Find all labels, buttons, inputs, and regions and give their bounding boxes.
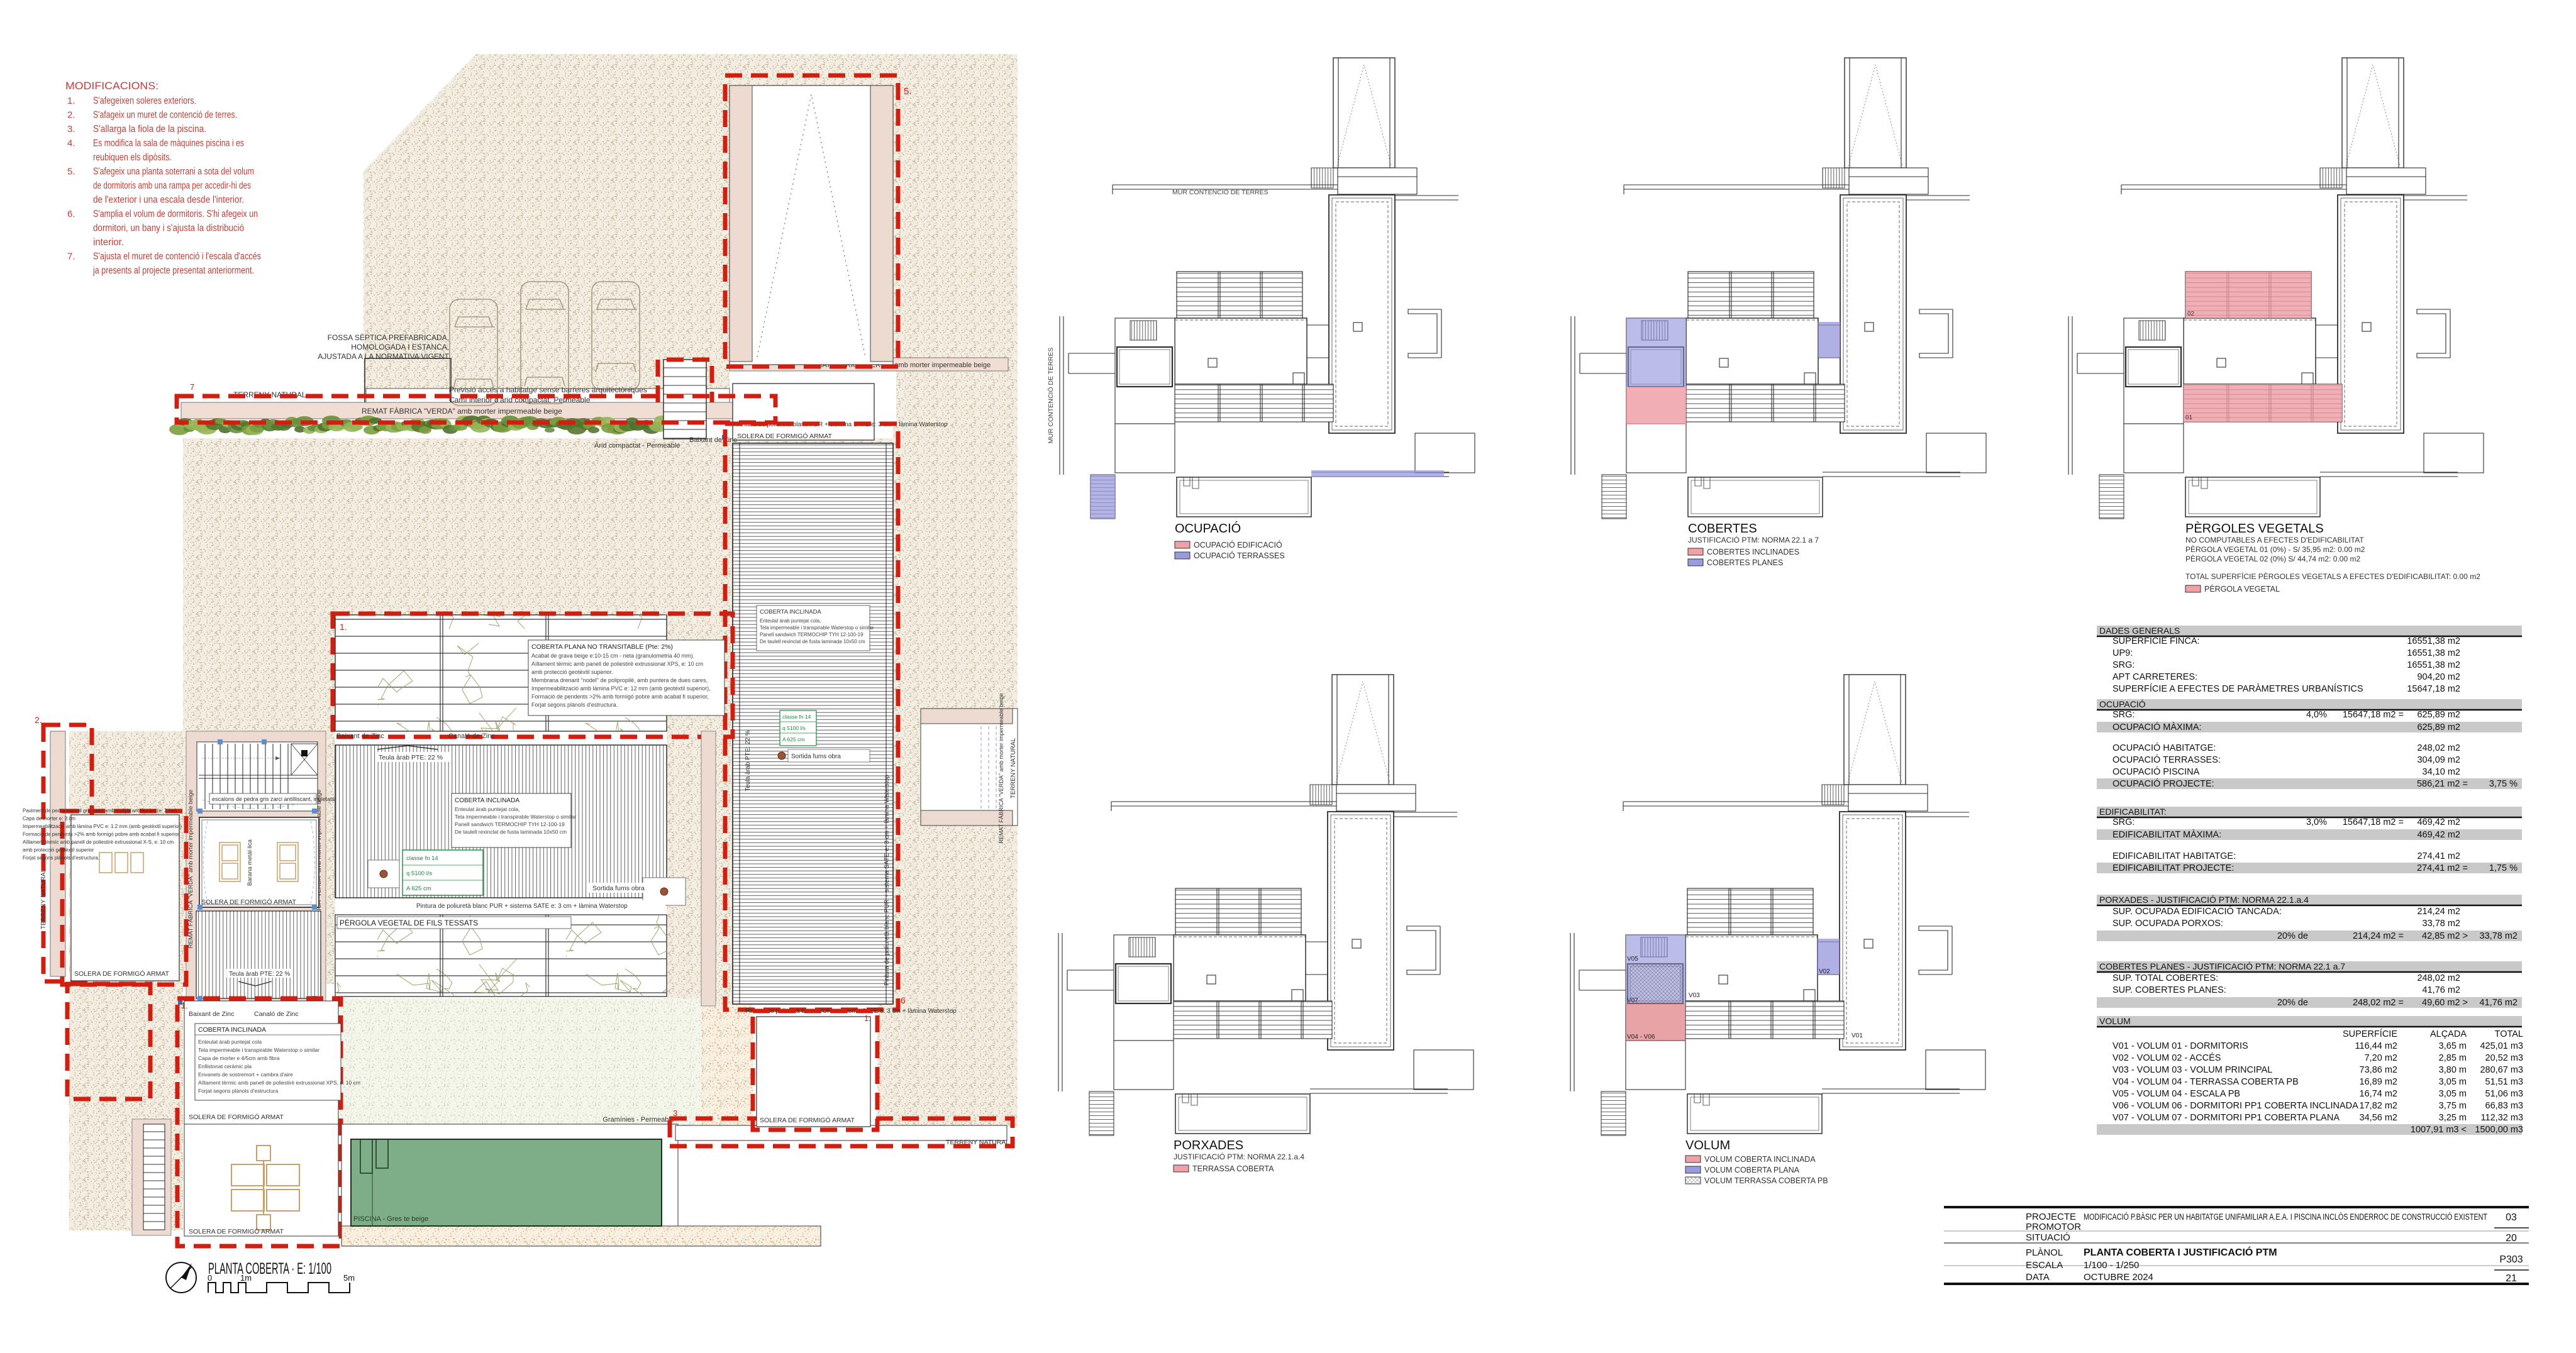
svg-text:15647,18 m2: 15647,18 m2 [2407, 684, 2460, 694]
svg-text:51,51 m3: 51,51 m3 [2485, 1077, 2523, 1087]
svg-text:7.: 7. [67, 251, 75, 262]
svg-text:AJUSTADA A LA NORMATIVA VIGENT: AJUSTADA A LA NORMATIVA VIGENT [318, 352, 449, 361]
svg-text:OCUPACIÓ: OCUPACIÓ [2099, 699, 2146, 709]
svg-text:V05 - VOLUM 04 - ESCALA PB: V05 - VOLUM 04 - ESCALA PB [2112, 1089, 2240, 1099]
svg-text:Gramínies - Permeable: Gramínies - Permeable [602, 1116, 674, 1124]
svg-text:SUP. OCUPADA EDIFICACIÓ TANCAD: SUP. OCUPADA EDIFICACIÓ TANCADA: [2112, 906, 2282, 917]
svg-text:248,02 m2: 248,02 m2 [2417, 743, 2460, 753]
svg-text:ESCALA: ESCALA [2026, 1260, 2063, 1271]
svg-text:VOLUM COBERTA PLANA: VOLUM COBERTA PLANA [1704, 1166, 1800, 1174]
svg-text:586,21 m2 =: 586,21 m2 = [2417, 779, 2468, 789]
svg-text:V07: V07 [1627, 997, 1638, 1004]
svg-text:3,05 m: 3,05 m [2439, 1077, 2467, 1087]
svg-text:16551,38 m2: 16551,38 m2 [2407, 648, 2460, 658]
svg-text:66,83 m3: 66,83 m3 [2485, 1101, 2523, 1111]
svg-text:COBERTA PLANA NO TRANSITABLE (: COBERTA PLANA NO TRANSITABLE (Pte: 2%) [531, 643, 673, 651]
svg-text:de dormitoris amb una rampa pe: de dormitoris amb una rampa per accedir-… [93, 180, 251, 191]
svg-text:SOLERA DE FORMIGÓ ARMAT: SOLERA DE FORMIGÓ ARMAT [189, 1227, 284, 1235]
svg-text:SOLERA DE FORMIGÓ ARMAT: SOLERA DE FORMIGÓ ARMAT [201, 898, 296, 906]
svg-text:PLANTA COBERTA I JUSTIFICACIÓ: PLANTA COBERTA I JUSTIFICACIÓ PTM [2084, 1246, 2277, 1258]
svg-text:dormitori, un bany i s'ajusta: dormitori, un bany i s'ajusta la distrib… [93, 223, 244, 234]
svg-text:3.: 3. [67, 124, 75, 135]
svg-text:Formació de pendents >2% amb f: Formació de pendents >2% amb formigó pob… [531, 693, 709, 700]
svg-text:5.: 5. [904, 86, 912, 97]
svg-text:16551,38 m2: 16551,38 m2 [2407, 636, 2460, 646]
svg-text:625,89 m2: 625,89 m2 [2417, 710, 2460, 720]
svg-text:Pintura de poliuretà blanc PUR: Pintura de poliuretà blanc PUR + sistema… [745, 1008, 957, 1015]
svg-text:REMAT FÀBRICA "VERDA" amb mort: REMAT FÀBRICA "VERDA" amb morter imperme… [998, 693, 1004, 843]
svg-text:51,06 m3: 51,06 m3 [2485, 1089, 2523, 1099]
svg-text:V07 - VOLUM 07 - DORMITORI PP: V07 - VOLUM 07 - DORMITORI PP1 COBERTA P… [2112, 1113, 2340, 1123]
svg-text:16551,38 m2: 16551,38 m2 [2407, 660, 2460, 670]
svg-text:SOLERA DE FORMIGÓ ARMAT: SOLERA DE FORMIGÓ ARMAT [189, 1113, 284, 1121]
svg-text:Aïllament tèrmic amb panell de: Aïllament tèrmic amb panell de poliestir… [23, 839, 174, 845]
svg-text:Pintura de poliuretà blanc PUR: Pintura de poliuretà blanc PUR + sistema… [416, 903, 628, 910]
svg-text:304,09 m2: 304,09 m2 [2417, 755, 2460, 765]
svg-text:VOLUM: VOLUM [1685, 1139, 1730, 1152]
svg-text:V04 - VOLUM 04 - TERRASSA COBE: V04 - VOLUM 04 - TERRASSA COBERTA PB [2112, 1077, 2299, 1087]
svg-text:COBERTES: COBERTES [1688, 522, 1757, 536]
svg-text:Pintura de poliuretà blanc PUR: Pintura de poliuretà blanc PUR + sistema… [884, 775, 891, 986]
svg-text:5.: 5. [67, 167, 75, 177]
svg-text:904,20 m2: 904,20 m2 [2417, 672, 2460, 682]
svg-text:TOTAL: TOTAL [2495, 1029, 2523, 1039]
svg-text:V04 - V06: V04 - V06 [1627, 1034, 1655, 1041]
svg-text:7,20 m2: 7,20 m2 [2365, 1053, 2397, 1063]
svg-text:Sortida fums obra: Sortida fums obra [791, 753, 841, 760]
svg-text:JUSTIFICACIÓ PTM: NORMA 22.1.a: JUSTIFICACIÓ PTM: NORMA 22.1.a.4 [1174, 1152, 1304, 1161]
svg-text:Teula àrab PTE: 22 %: Teula àrab PTE: 22 % [379, 754, 443, 761]
svg-text:Baixant de Zinc: Baixant de Zinc [689, 436, 737, 444]
svg-text:EDIFICABILITAT MÀXIMA:: EDIFICABILITAT MÀXIMA: [2112, 829, 2221, 840]
svg-text:OCUPACIÓ PISCINA: OCUPACIÓ PISCINA [2112, 766, 2200, 777]
svg-text:16,74 m2: 16,74 m2 [2360, 1089, 2397, 1099]
svg-text:Capa de morter e 4/5cm amb fib: Capa de morter e 4/5cm amb fibra [198, 1055, 280, 1061]
svg-text:1,75 %: 1,75 % [2489, 863, 2518, 873]
svg-text:6: 6 [901, 995, 906, 1005]
svg-text:3,25 m: 3,25 m [2439, 1113, 2467, 1123]
svg-text:TERRENY NATURAL: TERRENY NATURAL [946, 1139, 1009, 1146]
svg-text:classe fn 14: classe fn 14 [782, 714, 811, 720]
svg-text:Forjat segons plànols d'estruc: Forjat segons plànols d'estructura. [531, 702, 618, 708]
svg-text:3,75 %: 3,75 % [2489, 779, 2518, 789]
svg-text:1m: 1m [240, 1273, 252, 1283]
svg-text:S'afegeix una planta soterrani: S'afegeix una planta soterrani a sota de… [93, 167, 254, 177]
svg-text:1/100 - 1/250: 1/100 - 1/250 [2084, 1260, 2139, 1271]
svg-text:MODIFICACIÓ P.BÀSIC PER UN HAB: MODIFICACIÓ P.BÀSIC PER UN HABITATGE UNI… [2084, 1212, 2487, 1222]
svg-text:A 625 cm: A 625 cm [406, 885, 431, 892]
svg-text:Impermeabilització amb làmina: Impermeabilització amb làmina PVC e: 12 … [531, 685, 711, 692]
svg-text:Teula àrab PTE: 22 %: Teula àrab PTE: 22 % [745, 730, 752, 791]
svg-text:VOLUM: VOLUM [2099, 1016, 2131, 1026]
svg-text:3,0%: 3,0% [2306, 817, 2327, 827]
svg-text:274,41 m2 =: 274,41 m2 = [2417, 863, 2468, 873]
svg-text:03: 03 [2506, 1212, 2517, 1223]
svg-text:SOLERA DE FORMIGÓ ARMAT: SOLERA DE FORMIGÓ ARMAT [760, 1116, 855, 1124]
svg-text:112,32 m3: 112,32 m3 [2481, 1113, 2523, 1123]
svg-text:1.: 1. [864, 1013, 871, 1023]
svg-text:VOLUM TERRASSA COBERTA PB: VOLUM TERRASSA COBERTA PB [1704, 1176, 1828, 1185]
svg-text:1.: 1. [67, 96, 75, 106]
svg-text:A 625 cm: A 625 cm [782, 736, 804, 743]
svg-text:Sortida fums obra: Sortida fums obra [592, 885, 645, 892]
svg-text:S'afageix un muret de contenci: S'afageix un muret de contenció de terre… [93, 110, 237, 121]
svg-text:20,52 m3: 20,52 m3 [2485, 1053, 2523, 1063]
svg-text:PÈRGOLA VEGETAL 02 (0%) S/ 4: PÈRGOLA VEGETAL 02 (0%) S/ 44,74 m2: 0.0… [2185, 554, 2360, 563]
svg-text:COBERTES INCLINADES: COBERTES INCLINADES [1707, 548, 1799, 556]
svg-text:OCUPACIÓ MÀXIMA:: OCUPACIÓ MÀXIMA: [2112, 722, 2202, 732]
svg-text:Aïllament tèrmic amb panell de: Aïllament tèrmic amb panell de poliestir… [198, 1080, 360, 1086]
svg-text:Tela impermeable i transpirabl: Tela impermeable i transpirable Watersto… [760, 625, 874, 631]
svg-text:OCTUBRE 2024: OCTUBRE 2024 [2084, 1272, 2153, 1283]
svg-text:PISCINA - Gres te beige: PISCINA - Gres te beige [353, 1215, 428, 1223]
svg-text:469,42 m2: 469,42 m2 [2417, 817, 2460, 827]
svg-text:Paviment de pedra natural gris: Paviment de pedra natural gris zarci amb… [23, 808, 177, 814]
svg-text:SUP. COBERTES PLANES:: SUP. COBERTES PLANES: [2112, 985, 2226, 995]
svg-text:214,24 m2: 214,24 m2 [2417, 907, 2460, 917]
svg-text:EDIFICABILITAT PROJECTE:: EDIFICABILITAT PROJECTE: [2112, 863, 2234, 873]
svg-text:Canaló de Zinc: Canaló de Zinc [254, 1010, 299, 1018]
svg-text:OCUPACIÓ: OCUPACIÓ [1175, 521, 1241, 536]
svg-text:15647,18 m2 =: 15647,18 m2 = [2343, 710, 2404, 720]
svg-text:Capa de morter e: 3 cm: Capa de morter e: 3 cm [23, 816, 75, 822]
svg-text:SRG:: SRG: [2112, 710, 2135, 720]
svg-text:de l'exterior i una escala des: de l'exterior i una escala desde l'inter… [93, 195, 244, 206]
svg-text:Acabat de grava beige e:10-15: Acabat de grava beige e:10-15 cm - neta … [531, 653, 694, 659]
svg-text:Enteulat àrab puntejat cola,: Enteulat àrab puntejat cola, [760, 618, 821, 624]
svg-text:PORXADES: PORXADES [1174, 1139, 1243, 1152]
svg-text:Baixant de Zinc: Baixant de Zinc [189, 1010, 234, 1018]
svg-text:3,80 m: 3,80 m [2439, 1065, 2467, 1075]
svg-text:EDIFICABILITAT:: EDIFICABILITAT: [2099, 807, 2167, 817]
svg-text:Enteulat àrab puntejat cola: Enteulat àrab puntejat cola [198, 1039, 262, 1045]
svg-text:Aïllament tèrmic amb panell de: Aïllament tèrmic amb panell de poliestir… [531, 661, 703, 667]
svg-text:Panell sandwich TERMOCHIP TYH: Panell sandwich TERMOCHIP TYH 12-100-19 [455, 821, 565, 827]
svg-text:COBERTA INCLINADA: COBERTA INCLINADA [198, 1026, 266, 1034]
svg-text:Enteulat àrab puntejat cola,: Enteulat àrab puntejat cola, [455, 806, 520, 812]
svg-text:Enllistonat ceràmic pla: Enllistonat ceràmic pla [198, 1063, 252, 1069]
svg-text:Baixant de Zinc: Baixant de Zinc [336, 732, 384, 740]
svg-text:SOLERA DE FORMIGÓ ARMAT: SOLERA DE FORMIGÓ ARMAT [737, 432, 832, 440]
svg-text:16,89 m2: 16,89 m2 [2360, 1077, 2397, 1087]
svg-text:interior.: interior. [93, 237, 124, 248]
svg-text:73,86 m2: 73,86 m2 [2360, 1065, 2397, 1075]
svg-text:De taulell rexinclat de fusta: De taulell rexinclat de fusta laminada 1… [760, 639, 865, 644]
svg-text:SRG:: SRG: [2112, 817, 2135, 827]
svg-text:2,85 m: 2,85 m [2439, 1053, 2467, 1063]
svg-text:TERRENY NATURAL: TERRENY NATURAL [1010, 737, 1017, 798]
svg-text:Forjat segons plànols d'estruc: Forjat segons plànols d'estructura. [23, 855, 99, 861]
svg-text:21: 21 [2506, 1273, 2517, 1284]
svg-text:SUP. OCUPADA PORXOS:: SUP. OCUPADA PORXOS: [2112, 919, 2223, 929]
svg-text:NO COMPUTABLES A EFECTES D'EDI: NO COMPUTABLES A EFECTES D'EDIFICABILITA… [2185, 536, 2364, 544]
svg-text:escalons de pedra gris zarci a: escalons de pedra gris zarci antilliscan… [212, 796, 335, 802]
svg-text:OCUPACIÓ PROJECTE:: OCUPACIÓ PROJECTE: [2112, 778, 2214, 789]
svg-text:1007,91 m3 <: 1007,91 m3 < [2411, 1125, 2467, 1135]
svg-text:SUPERFICIE FINCA:: SUPERFICIE FINCA: [2112, 636, 2200, 646]
svg-text:PÈRGOLA VEGETAL DE FILS TESSAT: PÈRGOLA VEGETAL DE FILS TESSATS [340, 918, 478, 927]
svg-text:DADES GENERALS: DADES GENERALS [2099, 626, 2180, 636]
svg-text:COBERTES PLANES - JUSTIFICACIÓ: COBERTES PLANES - JUSTIFICACIÓ PTM: NORM… [2099, 961, 2345, 971]
svg-text:41,76 m2: 41,76 m2 [2423, 985, 2460, 995]
svg-text:TERRASSA COBERTA: TERRASSA COBERTA [1192, 1164, 1274, 1173]
svg-text:UP9:: UP9: [2112, 648, 2133, 658]
svg-text:33,78 m2: 33,78 m2 [2423, 919, 2460, 929]
svg-text:APT CARRETERES:: APT CARRETERES: [2112, 672, 2197, 682]
svg-text:01: 01 [2185, 414, 2193, 421]
svg-text:5m: 5m [343, 1273, 355, 1283]
svg-text:S'amplia el volum de dormitori: S'amplia el volum de dormitoris. S'hi af… [93, 209, 258, 219]
svg-text:SOLERA DE FORMIGÓ ARMAT: SOLERA DE FORMIGÓ ARMAT [74, 969, 169, 978]
svg-text:JUSTIFICACIÓ PTM: NORMA 22.1 a: JUSTIFICACIÓ PTM: NORMA 22.1 a 7 [1688, 535, 1819, 544]
svg-text:34,10 m2: 34,10 m2 [2423, 767, 2460, 777]
svg-text:3,65 m: 3,65 m [2439, 1041, 2467, 1051]
svg-text:PÈRGOLA VEGETAL 01 (0%) - S/ 3: PÈRGOLA VEGETAL 01 (0%) - S/ 35,95 m2: 0… [2185, 544, 2365, 554]
svg-text:PORXADES - JUSTIFICACIÓ PTM: N: PORXADES - JUSTIFICACIÓ PTM: NORMA 22.1.… [2099, 895, 2309, 905]
svg-text:3: 3 [673, 1108, 677, 1118]
svg-text:Tela impermeable i transpirabl: Tela impermeable i transpirable Watersto… [198, 1047, 319, 1053]
svg-text:SRG:: SRG: [2112, 660, 2135, 670]
svg-text:COBERTA INCLINADA: COBERTA INCLINADA [760, 609, 822, 616]
svg-text:2.: 2. [67, 110, 75, 121]
svg-text:33,78 m2: 33,78 m2 [2480, 931, 2518, 941]
svg-text:425,01 m3: 425,01 m3 [2480, 1041, 2523, 1051]
svg-text:classe fn 14: classe fn 14 [406, 855, 438, 862]
svg-text:PLANTA COBERTA · E: 1/100: PLANTA COBERTA · E: 1/100 [208, 1260, 331, 1278]
svg-text:S'ajusta el muret de contenció: S'ajusta el muret de contenció i l'escal… [93, 251, 261, 262]
svg-text:V01 - VOLUM 01 - DORMITORIS: V01 - VOLUM 01 - DORMITORIS [2112, 1041, 2248, 1051]
svg-text:Impermeabilització amb làmina: Impermeabilització amb làmina PVC e: 1.2… [23, 824, 182, 829]
svg-text:Previsió accés a habitatge sen: Previsió accés a habitatge sense barrere… [449, 385, 647, 394]
svg-text:SITUACIÓ: SITUACIÓ [2026, 1232, 2070, 1243]
svg-text:1.: 1. [340, 622, 347, 632]
svg-text:P303: P303 [2499, 1254, 2523, 1265]
svg-text:V01: V01 [1851, 1032, 1863, 1039]
svg-text:274,41 m2: 274,41 m2 [2417, 851, 2460, 861]
svg-text:TERRENY NATURAL: TERRENY NATURAL [40, 868, 47, 929]
svg-text:OCUPACIÓ TERRASSES:: OCUPACIÓ TERRASSES: [2112, 754, 2221, 765]
svg-text:Teula àrab PTE: 22 %: Teula àrab PTE: 22 % [229, 971, 290, 978]
svg-text:3,75 m: 3,75 m [2439, 1101, 2467, 1111]
svg-text:V03: V03 [1689, 992, 1700, 999]
svg-text:OCUPACIÓ TERRASSES: OCUPACIÓ TERRASSES [1194, 551, 1285, 560]
svg-text:V02: V02 [1819, 968, 1830, 975]
svg-text:S'allarga la fiola de la pisci: S'allarga la fiola de la piscina. [93, 124, 206, 135]
svg-text:15647,18 m2 =: 15647,18 m2 = [2343, 817, 2404, 827]
svg-text:V02 - VOLUM 02 - ACCÉS: V02 - VOLUM 02 - ACCÉS [2112, 1052, 2221, 1063]
svg-text:REMAT FÀBRICA "VERDA" amb mort: REMAT FÀBRICA "VERDA" amb morter imperme… [362, 406, 562, 416]
svg-text:EDIFICABILITAT HABITATGE:: EDIFICABILITAT HABITATGE: [2112, 851, 2236, 861]
svg-text:49,60 m2 >: 49,60 m2 > [2422, 998, 2468, 1008]
svg-text:S'afegeixen soleres exteriors.: S'afegeixen soleres exteriors. [93, 96, 196, 106]
svg-text:SUP. TOTAL COBERTES:: SUP. TOTAL COBERTES: [2112, 973, 2218, 983]
svg-text:42,85 m2 >: 42,85 m2 > [2422, 931, 2468, 941]
svg-text:MODIFICACIONS:: MODIFICACIONS: [65, 80, 158, 92]
svg-text:SUPERFÍCIE: SUPERFÍCIE [2343, 1029, 2397, 1039]
svg-text:1.: 1. [181, 1001, 188, 1010]
svg-text:3,05 m: 3,05 m [2439, 1089, 2467, 1099]
svg-text:OCUPACIÓ HABITATGE:: OCUPACIÓ HABITATGE: [2112, 743, 2216, 753]
svg-text:469,42 m2: 469,42 m2 [2417, 830, 2460, 840]
svg-text:7: 7 [190, 382, 194, 392]
svg-text:TOTAL SUPERFÍCIE PÈRGOLES VEGE: TOTAL SUPERFÍCIE PÈRGOLES VEGETALS A EFE… [2185, 572, 2480, 581]
svg-text:PROJECTE: PROJECTE [2026, 1212, 2076, 1222]
svg-text:HOMOLOGADA I ESTANCA,: HOMOLOGADA I ESTANCA, [351, 343, 449, 351]
svg-text:Àrid compactat - Permeable: Àrid compactat - Permeable [594, 441, 680, 450]
svg-text:amb protecció geotèxtil superi: amb protecció geotèxtil superior [23, 848, 94, 853]
svg-text:2.: 2. [35, 715, 42, 725]
svg-text:4.: 4. [67, 138, 75, 149]
svg-text:MUR CONTENCIÓ DE TERRES: MUR CONTENCIÓ DE TERRES [1046, 348, 1055, 444]
svg-text:625,89 m2: 625,89 m2 [2417, 722, 2460, 732]
svg-text:Barana metàl·lica: Barana metàl·lica [247, 839, 253, 886]
svg-text:02: 02 [2187, 311, 2195, 318]
svg-text:41,76 m2: 41,76 m2 [2480, 998, 2518, 1008]
svg-text:248,02 m2 =: 248,02 m2 = [2353, 998, 2404, 1008]
svg-text:248,02 m2: 248,02 m2 [2417, 973, 2460, 983]
svg-text:Forjat segons plànols d'estruc: Forjat segons plànols d'estructura [198, 1088, 279, 1094]
svg-text:reubiquen els dipòsits.: reubiquen els dipòsits. [93, 152, 172, 163]
svg-text:0: 0 [208, 1273, 212, 1283]
svg-text:20% de: 20% de [2277, 998, 2308, 1008]
svg-text:COBERTA INCLINADA: COBERTA INCLINADA [455, 797, 519, 804]
svg-text:Tela impermeable i transpirabl: Tela impermeable i transpirable Watersto… [455, 814, 576, 820]
svg-text:SUPERFÍCIE A EFECTES DE PARÀME: SUPERFÍCIE A EFECTES DE PARÀMETRES URBAN… [2112, 683, 2363, 694]
svg-text:REMAT FÀBRICA "VERDA" amb mort: REMAT FÀBRICA "VERDA" amb morter imperme… [187, 790, 194, 948]
svg-text:amb protecció geotèxtil superi: amb protecció geotèxtil superior. [531, 669, 613, 675]
svg-text:34,56 m2: 34,56 m2 [2360, 1113, 2397, 1123]
svg-text:4,0%: 4,0% [2306, 710, 2327, 720]
svg-text:Membrana drenant "nodel" de po: Membrana drenant "nodel" de polipropilè,… [531, 677, 708, 683]
svg-text:q 5100 l/s: q 5100 l/s [406, 870, 432, 877]
svg-text:17,82 m2: 17,82 m2 [2360, 1101, 2397, 1111]
svg-text:20: 20 [2506, 1233, 2517, 1244]
svg-text:280,67 m3: 280,67 m3 [2480, 1065, 2523, 1075]
svg-text:FOSSA SÈPTICA PREFABRICADA,: FOSSA SÈPTICA PREFABRICADA, [328, 333, 449, 342]
svg-text:Es modifica la sala de màquine: Es modifica la sala de màquines piscina … [93, 138, 244, 149]
svg-text:PÈRGOLA VEGETAL: PÈRGOLA VEGETAL [2204, 584, 2280, 594]
svg-text:Canaló de Zinc: Canaló de Zinc [448, 732, 495, 740]
svg-text:q 5100 l/s: q 5100 l/s [782, 725, 806, 731]
svg-text:PROMOTOR: PROMOTOR [2026, 1222, 2081, 1232]
svg-text:20% de: 20% de [2277, 931, 2308, 941]
svg-text:6.: 6. [67, 209, 75, 219]
svg-text:ja presents al projecte presen: ja presents al projecte presentat anteri… [92, 265, 254, 276]
svg-text:De taulell rexinclat de fusta: De taulell rexinclat de fusta laminada 1… [455, 829, 567, 835]
svg-text:1500,00 m3: 1500,00 m3 [2475, 1125, 2523, 1135]
svg-text:V03 - VOLUM 03 - VOLUM PRINCIP: V03 - VOLUM 03 - VOLUM PRINCIPAL [2112, 1065, 2272, 1075]
svg-text:VOLUM COBERTA INCLINADA: VOLUM COBERTA INCLINADA [1704, 1155, 1816, 1164]
svg-text:Formació de pendents >2% amb f: Formació de pendents >2% amb formigó pob… [23, 832, 180, 837]
svg-text:COBERTES PLANES: COBERTES PLANES [1707, 558, 1783, 567]
svg-text:PÈRGOLES VEGETALS: PÈRGOLES VEGETALS [2185, 521, 2324, 536]
svg-text:ALÇADA: ALÇADA [2430, 1029, 2467, 1039]
svg-text:MUR CONTENCIÓ DE TERRES: MUR CONTENCIÓ DE TERRES [1172, 188, 1269, 196]
svg-text:V06 - VOLUM 06 - DORMITORI PP1: V06 - VOLUM 06 - DORMITORI PP1 COBERTA I… [2112, 1101, 2358, 1111]
svg-text:PLÀNOL: PLÀNOL [2026, 1247, 2063, 1258]
svg-text:Panell sandwich TERMOCHIP TYH: Panell sandwich TERMOCHIP TYH 12-100-19 [760, 632, 863, 638]
svg-text:214,24 m2 =: 214,24 m2 = [2353, 931, 2404, 941]
svg-text:116,44 m2: 116,44 m2 [2355, 1041, 2397, 1051]
svg-text:Envanets de sostremort + cambr: Envanets de sostremort + cambra d'aire [198, 1071, 293, 1078]
svg-text:V05: V05 [1627, 956, 1638, 963]
svg-text:OCUPACIÓ EDIFICACIÓ: OCUPACIÓ EDIFICACIÓ [1194, 540, 1282, 549]
svg-text:DATA: DATA [2026, 1272, 2050, 1283]
